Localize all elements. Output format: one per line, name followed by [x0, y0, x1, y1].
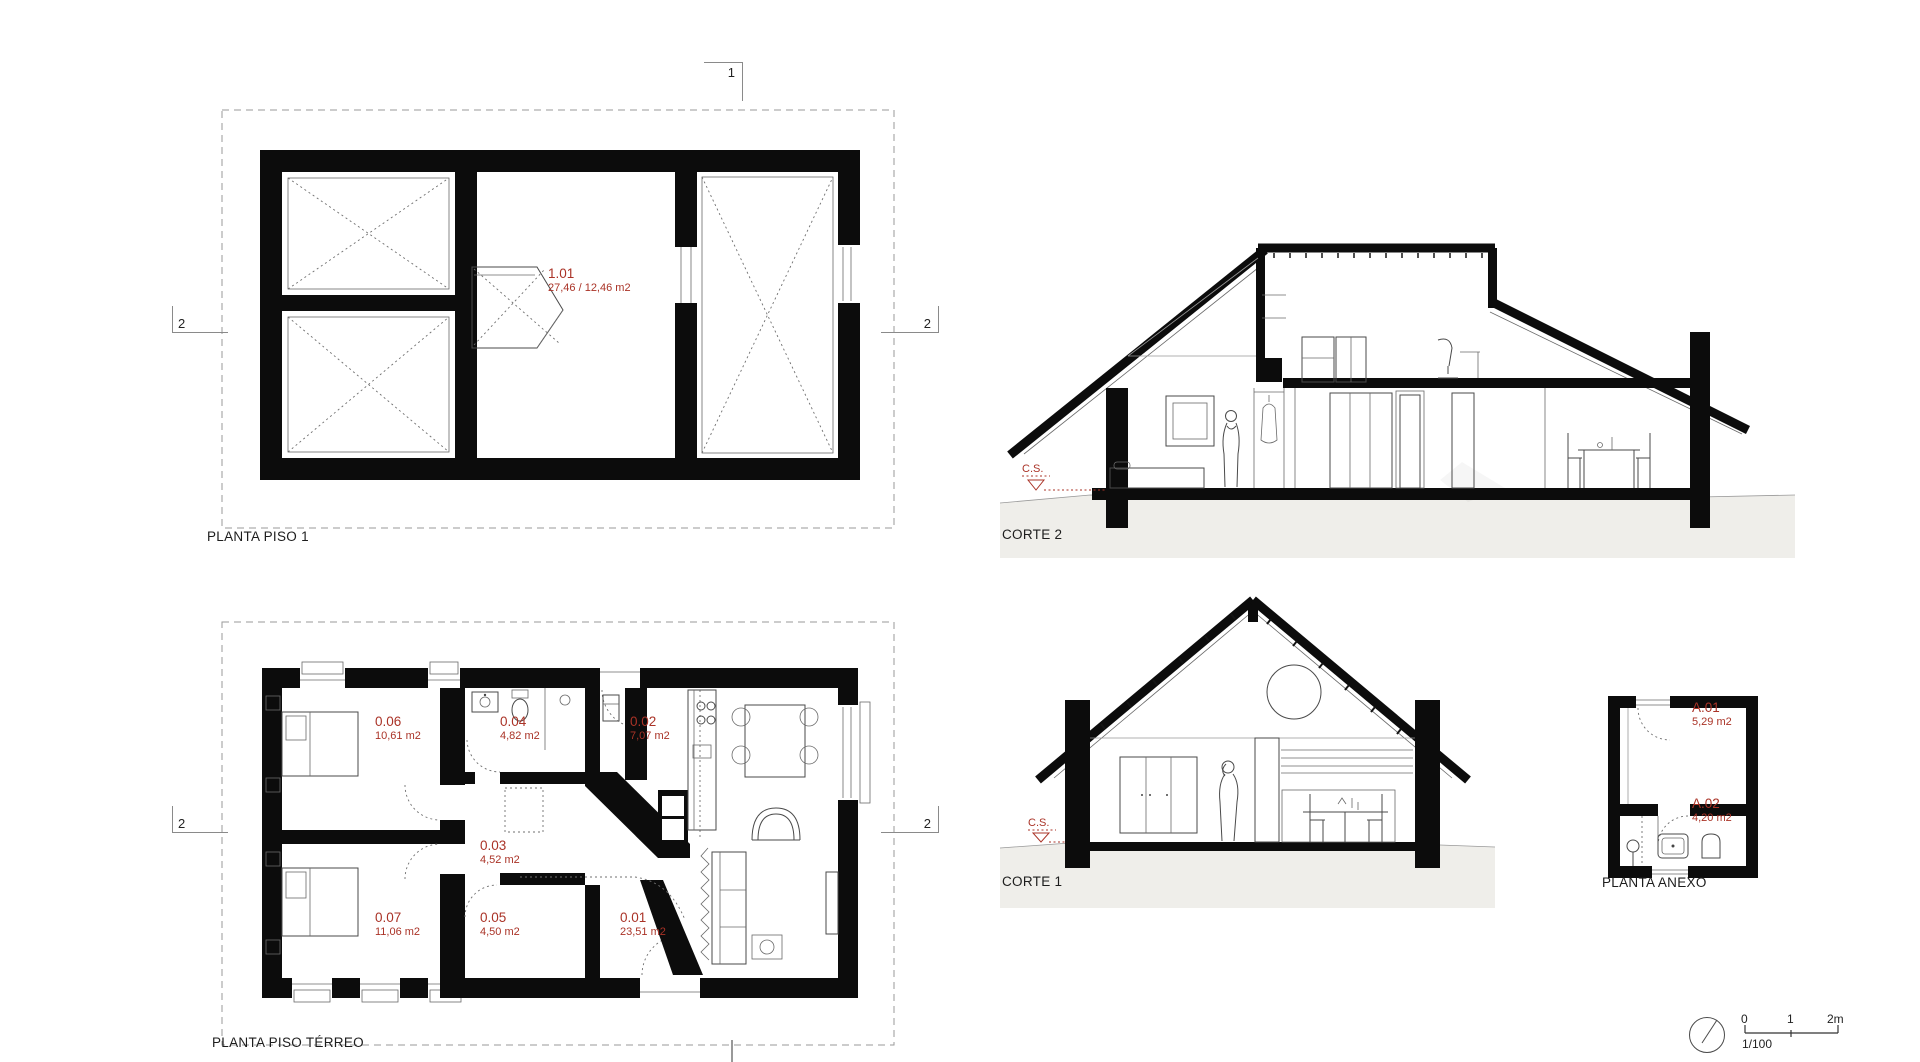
upper-cabinets: [1302, 337, 1366, 382]
room-label-0-03: 0.03 4,52 m2: [480, 838, 520, 866]
closet: [1254, 388, 1284, 488]
roof-battens: [1075, 614, 1427, 756]
scale-tick-1: 1: [1787, 1012, 1794, 1026]
room-label-a-01: A.01 5,29 m2: [1692, 700, 1732, 728]
hanging-coat: [1261, 404, 1277, 443]
planta-anexo-drawing: [1600, 688, 1770, 888]
dining-set: [1568, 433, 1650, 488]
window: [838, 702, 870, 803]
section-line-1-tail: [731, 1040, 733, 1062]
dining-set: [1303, 794, 1388, 842]
room-label-0-02: 0.02 7,07 m2: [630, 714, 670, 742]
room-label-0-04: 0.04 4,82 m2: [500, 714, 540, 742]
room-label-0-05: 0.05 4,50 m2: [480, 910, 520, 938]
corte-2-drawing: C.S.: [1000, 240, 1800, 560]
plan-title-piso1: PLANTA PISO 1: [207, 529, 309, 544]
scale-ratio: 1/100: [1742, 1037, 1772, 1051]
roof-battens: [1274, 253, 1482, 258]
level-marker-cs: C.S.: [1022, 463, 1106, 490]
person-figure: [1220, 761, 1238, 841]
window: [428, 660, 460, 692]
room-label-0-06: 0.06 10,61 m2: [375, 714, 421, 742]
window: [292, 974, 332, 1004]
planta-piso-terreo-drawing: [215, 600, 900, 1060]
desk-chair: [1438, 339, 1480, 378]
room-label-0-07: 0.07 11,06 m2: [375, 910, 420, 938]
plan-title-anexo: PLANTA ANEXO: [1602, 875, 1707, 890]
scale-tick-2m: 2m: [1827, 1012, 1844, 1026]
round-window: [1267, 665, 1321, 719]
section-marker-2-left-top: 2: [172, 306, 228, 333]
planta-piso-1-drawing: [215, 85, 900, 540]
section-marker-1-top: 1: [704, 62, 743, 101]
room-label-1-01: 1.01 27,46 / 12,46 m2: [548, 266, 631, 294]
sliding-doors: [1330, 393, 1392, 488]
room-label-a-02: A.02 4,20 m2: [1692, 796, 1732, 824]
room-label-0-01: 0.01 23,51 m2: [620, 910, 666, 938]
shelves: [1262, 295, 1286, 318]
svg-text:C.S.: C.S.: [1022, 463, 1043, 475]
section-title-corte1: CORTE 1: [1002, 874, 1062, 889]
window: [300, 660, 345, 692]
wardrobe: [1120, 757, 1197, 833]
svg-text:C.S.: C.S.: [1028, 817, 1049, 829]
door: [1396, 391, 1424, 488]
window: [360, 974, 400, 1004]
person-figure: [1223, 411, 1239, 488]
drawing-sheet: { "colors": {"accent_red": "#aa3327", "g…: [0, 0, 1920, 1062]
scale-tick-0: 0: [1741, 1012, 1748, 1026]
scale-ruler: [1745, 1025, 1838, 1037]
scale-bar-drawing: [1685, 1000, 1865, 1060]
section-marker-2-right-top: 2: [881, 306, 939, 333]
section-marker-2-left-bottom: 2: [172, 806, 228, 833]
kitchen-cabinets: [1255, 738, 1413, 842]
corte-1-drawing: C.S.: [1000, 580, 1500, 910]
section-marker-2-right-bottom: 2: [881, 806, 939, 833]
section-title-corte2: CORTE 2: [1002, 527, 1062, 542]
plan-title-terreo: PLANTA PISO TÉRREO: [212, 1035, 364, 1050]
level-marker-cs: C.S.: [1028, 817, 1065, 842]
